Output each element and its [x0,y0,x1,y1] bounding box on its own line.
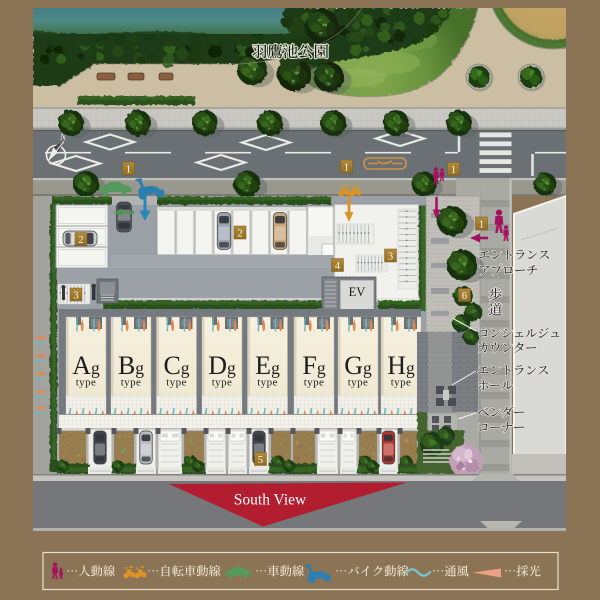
svg-text:type: type [391,377,412,389]
svg-text:South View: South View [234,492,307,509]
svg-text:type: type [257,377,278,389]
svg-text:1: 1 [126,164,131,176]
svg-text:6: 6 [462,290,468,302]
svg-text:1: 1 [479,219,484,231]
svg-text:type: type [166,377,187,389]
svg-text:2: 2 [78,234,83,246]
svg-text:type: type [76,377,97,389]
svg-text:type: type [348,377,369,389]
svg-text:type: type [212,377,233,389]
svg-text:type: type [304,377,325,389]
svg-text:type: type [121,377,142,389]
svg-text:EV: EV [349,285,366,299]
svg-text:3: 3 [388,251,393,263]
svg-text:5: 5 [258,454,263,466]
svg-text:4: 4 [335,260,341,272]
svg-text:1: 1 [451,164,456,176]
svg-text:2: 2 [237,228,242,240]
svg-text:1: 1 [344,162,349,174]
svg-text:3: 3 [73,290,78,302]
